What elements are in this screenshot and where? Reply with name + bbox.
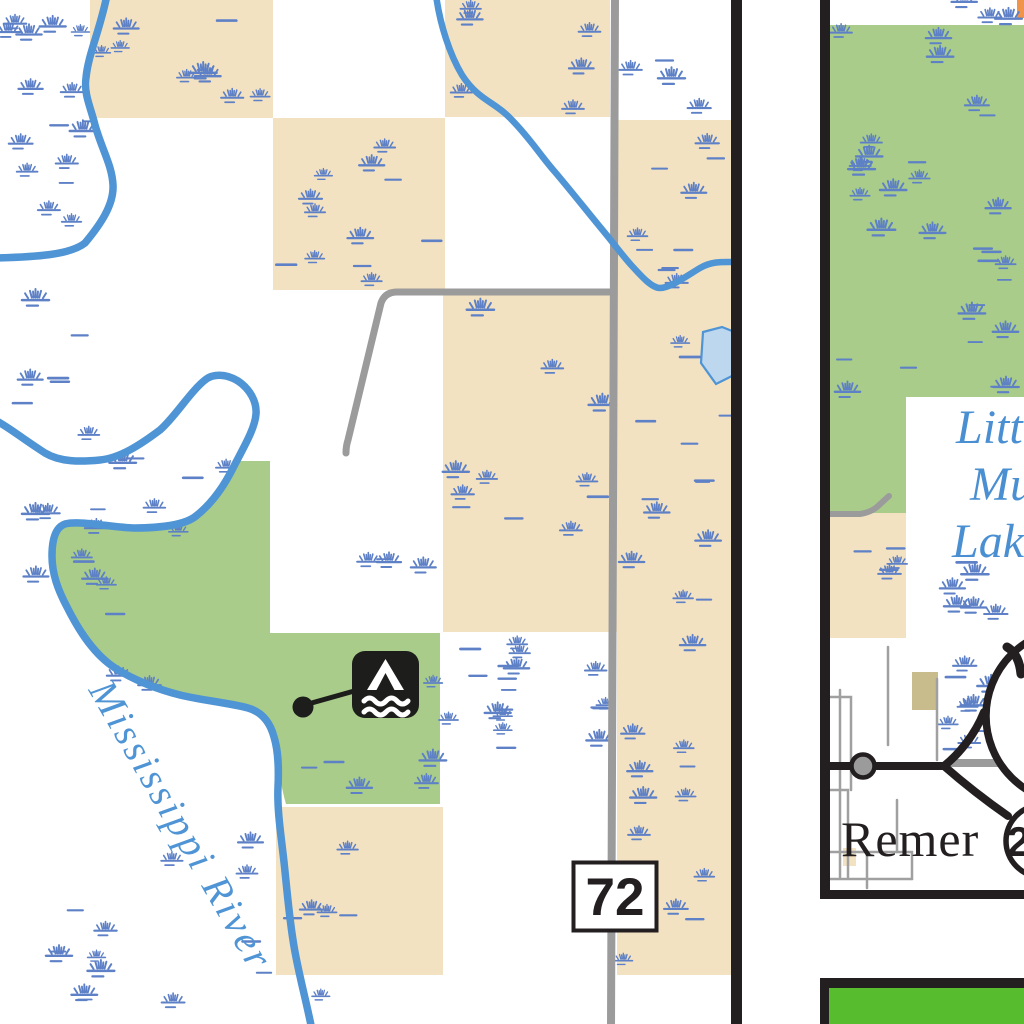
lake-label-line3: Lake [951,515,1024,568]
campsite-water-access-icon [352,651,419,718]
highway-200-number: 200 [1007,818,1024,865]
site-location-dot [293,697,314,718]
town-label: Remer [841,811,979,867]
orange-sliver [1017,0,1024,18]
main-map-border [731,0,742,1024]
highway-72-number: 72 [586,868,645,927]
legend-green-swatch [829,988,1024,1024]
khaki-block [912,672,938,710]
right-panel-left-border [820,0,830,899]
map-page: Mississippi River 72 [0,0,1024,1024]
legend-panel [820,978,1024,1024]
legend-panel-left-border [820,978,829,1024]
junction-dot [852,755,875,778]
main-map-panel: Mississippi River 72 [0,0,740,1024]
lake-label-line2: Mud [969,458,1024,511]
lake-label-line1: Little [955,401,1024,454]
right-map-panel: 200 Remer Little Mud Lake [828,0,1024,890]
map-canvas: Mississippi River 72 [0,0,1024,1024]
highway-72-shield: 72 [574,863,657,931]
legend-panel-top-border [820,978,1024,988]
right-panel-bottom-border [820,890,1024,899]
